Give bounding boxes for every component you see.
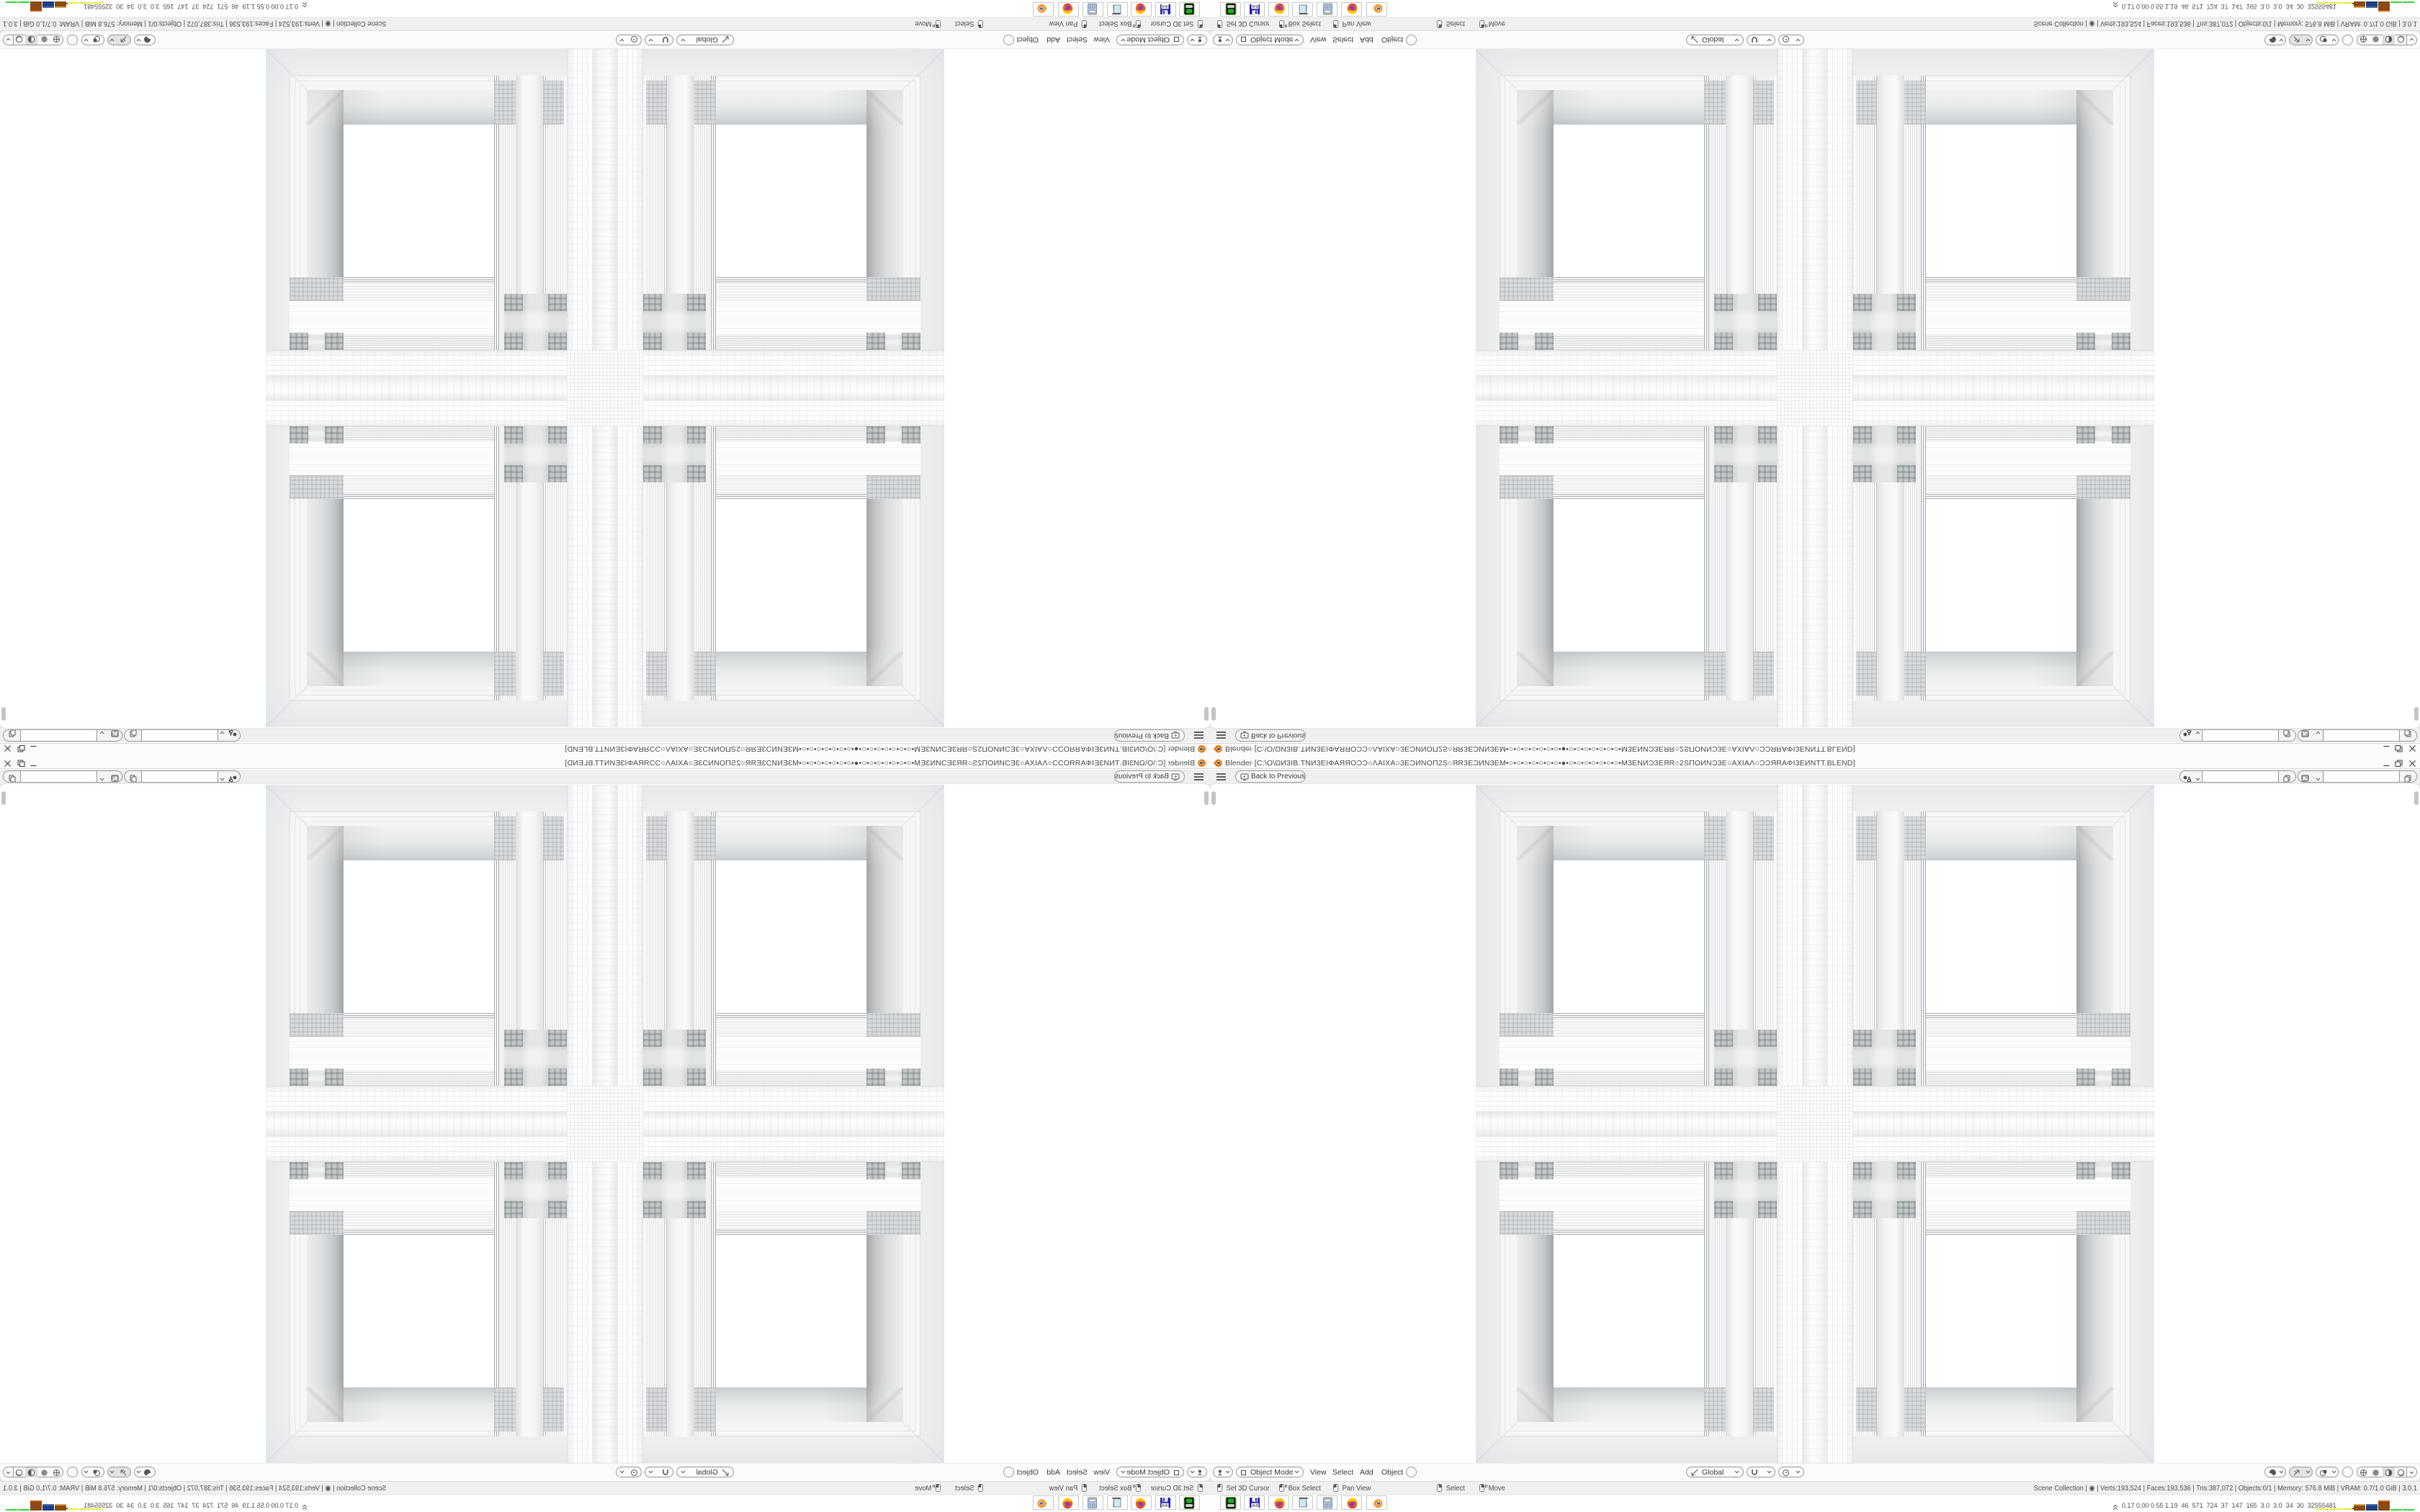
svg-text:64: 64 (1252, 4, 1258, 9)
svg-text:64: 64 (1252, 1503, 1258, 1508)
svg-text:64: 64 (1162, 1503, 1168, 1508)
svg-text:64: 64 (1162, 4, 1168, 9)
